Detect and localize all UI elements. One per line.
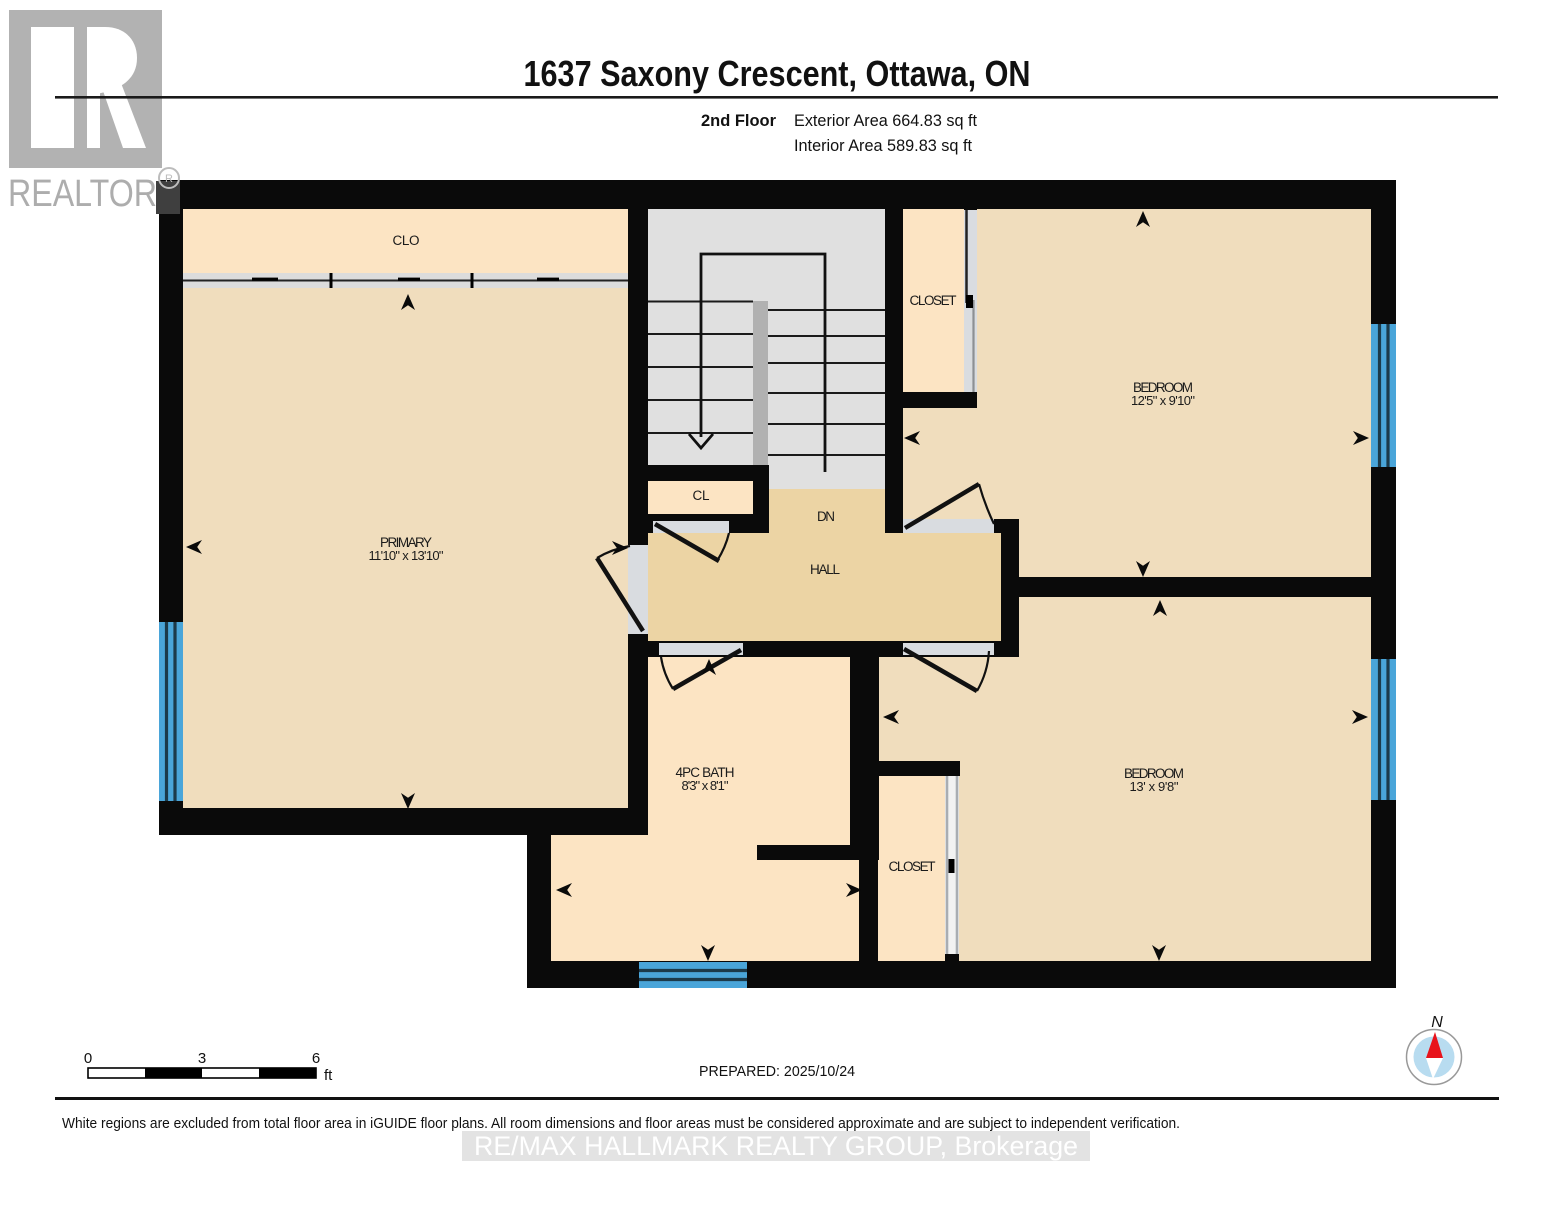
svg-text:Exterior Area 664.83 sq ft: Exterior Area 664.83 sq ft xyxy=(794,111,977,130)
svg-text:CLOSET: CLOSET xyxy=(910,293,957,308)
svg-text:1637 Saxony Crescent, Ottawa,: 1637 Saxony Crescent, Ottawa, ON xyxy=(524,53,1031,94)
svg-text:0: 0 xyxy=(84,1050,92,1067)
svg-text:ft: ft xyxy=(324,1067,333,1084)
svg-text:Interior Area 589.83 sq ft: Interior Area 589.83 sq ft xyxy=(794,136,972,155)
svg-text:CL: CL xyxy=(693,488,710,503)
svg-text:REALTOR: REALTOR xyxy=(8,173,157,215)
svg-text:13' x 9'8": 13' x 9'8" xyxy=(1130,779,1179,794)
svg-text:CLOSET: CLOSET xyxy=(889,859,936,874)
svg-text:White regions are excluded fro: White regions are excluded from total fl… xyxy=(62,1115,1180,1132)
svg-text:RE/MAX HALLMARK REALTY GROUP,: RE/MAX HALLMARK REALTY GROUP, Brokerage xyxy=(474,1131,1078,1161)
svg-text:2nd Floor: 2nd Floor xyxy=(701,111,776,130)
svg-text:PREPARED: 2025/10/24: PREPARED: 2025/10/24 xyxy=(699,1063,855,1080)
svg-text:DN: DN xyxy=(817,509,835,524)
svg-text:HALL: HALL xyxy=(810,562,840,577)
svg-text:N: N xyxy=(1431,1014,1443,1031)
svg-text:8'3" x 8'1": 8'3" x 8'1" xyxy=(682,778,729,793)
svg-text:3: 3 xyxy=(198,1050,206,1067)
svg-text:12'5" x 9'10": 12'5" x 9'10" xyxy=(1131,393,1195,408)
svg-text:11'10" x 13'10": 11'10" x 13'10" xyxy=(369,548,444,563)
svg-text:CLO: CLO xyxy=(393,233,420,248)
svg-text:6: 6 xyxy=(312,1050,320,1067)
svg-text:R: R xyxy=(165,173,173,185)
